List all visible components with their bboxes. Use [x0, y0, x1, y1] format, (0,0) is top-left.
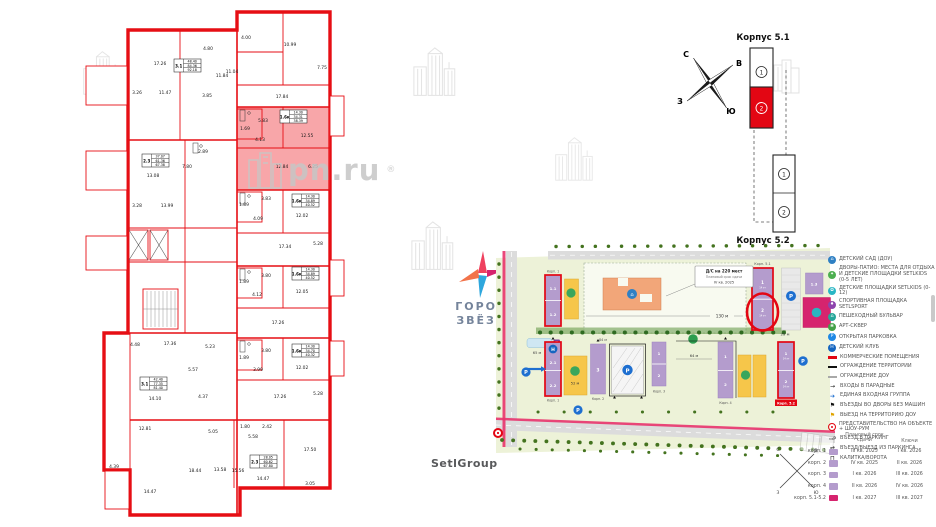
apartment-masterplan-page: 17.26 4.80 11.84 11.47 3.26 3.85 4.00 10… — [0, 0, 936, 527]
room-area: 4.12 — [252, 292, 262, 298]
floor-plan[interactable]: 17.26 4.80 11.84 11.47 3.26 3.85 4.00 10… — [84, 8, 396, 524]
section-label: 1.2 — [550, 312, 557, 317]
showroom-marker-icon[interactable] — [494, 429, 502, 437]
main-entrance-arrow-icon: ➔ — [828, 393, 837, 400]
unit-area: 40.52 — [305, 203, 314, 207]
callout-line1: Д/С на 220 мест — [706, 269, 743, 274]
korpus-label: Корп. 2 — [592, 397, 604, 401]
dimension-25: 25 м — [781, 332, 790, 337]
kids-club-icon: Н — [828, 344, 836, 352]
floors-label: 14 эт — [783, 386, 790, 389]
setlkids-playground-icon: ✿ — [828, 287, 836, 295]
korpus-51-title: Корпус 5.1 — [736, 33, 789, 43]
unit-table[interactable]: 3.1 48.40 84.36 92.18 — [174, 59, 201, 72]
unit-type: 1.6к — [280, 114, 290, 119]
room-area: 3.28 — [132, 203, 142, 209]
unit-area: 40.52 — [305, 276, 314, 280]
kindergarten-fence-icon — [828, 376, 837, 377]
compass-south: Ю — [726, 107, 735, 116]
room-area: 4.80 — [203, 46, 213, 52]
unit-table[interactable]: 1.6к 14.30 34.70 40.32 — [292, 344, 319, 357]
mini-compass-north: С — [776, 447, 779, 453]
room-area: 3.26 — [132, 90, 142, 96]
room-area: 14.47 — [257, 476, 270, 482]
floors-label: 14 эт — [759, 315, 766, 318]
legend-label: КОММЕРЧЕСКИЕ ПОМЕЩЕНИЯ — [840, 355, 919, 361]
korpus-label: Корп. 5.1 — [754, 262, 770, 266]
section-label: 2.2 — [550, 383, 557, 388]
dimension-65: 65 м — [533, 351, 542, 355]
unit-type: 3.1 — [175, 63, 182, 68]
room-area: 3.05 — [305, 481, 315, 487]
developer-name: SetlGroup — [431, 457, 498, 470]
keys-value: IV кв. 2026 — [887, 484, 932, 489]
city-sketch-icon — [774, 60, 799, 93]
section-label: 2 — [785, 379, 788, 384]
section-label: 1 — [724, 354, 727, 359]
term-value: IV кв. 2025 — [842, 461, 887, 466]
unit-area: 67.38 — [155, 163, 164, 167]
entrance-arrow-icon: → — [828, 383, 837, 390]
unit-table-selected[interactable]: 1.6к 14.30 34.31 38.39 — [280, 110, 307, 123]
room-area: 5.28 — [313, 391, 323, 397]
room-area: 12.05 — [296, 289, 309, 295]
keys-value: II кв. 2026 — [887, 461, 932, 466]
room-area: 17.26 — [274, 394, 287, 400]
room-area: 3.99 — [253, 367, 263, 373]
term-value: I кв. 2027 — [842, 496, 887, 501]
unit-type: 1.6к — [292, 198, 302, 203]
floors-label: 14 эт — [759, 287, 766, 290]
room-area: 10.99 — [284, 42, 297, 48]
pedestrian-boulevard — [536, 328, 786, 335]
section-label: 1.1 — [550, 286, 557, 291]
legend-label: ОГРАЖДЕНИЕ ТЕРРИТОРИИ — [840, 364, 912, 370]
room-area: 18.44 — [189, 468, 202, 474]
keys-value: III кв. 2027 — [887, 496, 932, 501]
compass-west: З — [677, 97, 683, 106]
patio-yards-icon: ✦ — [828, 271, 836, 279]
legend-label: ДЕТСКИЙ КЛУБ — [839, 345, 879, 351]
korpus-label: Корп. 4 — [719, 401, 731, 405]
room-area: 13.08 — [147, 173, 160, 179]
unit-type: 2.3 — [251, 459, 258, 464]
scrollbar-thumb[interactable] — [931, 295, 935, 322]
korpus-label: Корп. 5.2 — [777, 401, 795, 405]
room-area: 11.04 — [226, 69, 239, 75]
unit-table[interactable]: 1.6к 14.30 34.89 40.52 — [292, 267, 319, 280]
section-2-number: 2 — [760, 106, 764, 112]
room-area: 12.02 — [296, 213, 309, 219]
room-area: 1.89 — [239, 279, 249, 285]
legend-label: ВЫЕЗД НА ТЕРРИТОРИЮ ДОУ — [840, 413, 916, 419]
playground-icon — [570, 366, 580, 376]
kids-club-glyph: Н — [551, 347, 555, 353]
open-parking-strip: P — [782, 268, 801, 330]
unit-area: 40.32 — [305, 353, 314, 357]
mini-compass-west: З — [777, 490, 780, 496]
mini-compass-south: Ю — [814, 490, 819, 496]
unit-type: 1.6к — [292, 348, 302, 353]
korpus-swatch-selected — [829, 495, 838, 502]
callout-line2: Плановый срок сдачи — [706, 275, 742, 279]
parking-glyph: P — [789, 294, 793, 300]
floors-label: 14 эт — [783, 358, 790, 361]
room-area: 17.26 — [272, 320, 285, 326]
callout-line3: IV кв. 2025 — [714, 281, 734, 285]
unit-type: 3.1 — [141, 381, 148, 386]
yellow-building[interactable] — [565, 279, 579, 319]
room-area: 3.83 — [261, 196, 271, 202]
playground-icon — [741, 370, 750, 379]
room-area: 4.13 — [255, 137, 265, 143]
room-area: 4.00 — [241, 35, 251, 41]
dimension-52: 52 м — [571, 382, 580, 386]
kindergarten-icon: ⌂ — [828, 256, 836, 264]
staircase — [143, 289, 178, 329]
section-label: 3 — [596, 368, 599, 374]
korpus-swatch — [829, 472, 838, 479]
room-area: 17.26 — [154, 61, 167, 67]
section-1-number: 1 — [760, 70, 764, 76]
room-area: 17.36 — [164, 341, 177, 347]
legend-label: ПЕШЕХОДНЫЙ БУЛЬВАР — [839, 314, 903, 320]
section-label: 2 — [658, 373, 661, 378]
legend-label: СПОРТИВНАЯ ПЛОЩАДКА SETLSPORT — [839, 299, 935, 311]
korpus-51-schematic[interactable]: 1 2 — [750, 48, 773, 128]
room-area: 7.75 — [317, 65, 327, 71]
room-area: 3.80 — [261, 273, 271, 279]
art-square-icon: ❀ — [828, 323, 836, 331]
room-area: 1.89 — [239, 355, 249, 361]
dimension-64: 64 м — [690, 354, 699, 358]
compass-rose-icon: С В З Ю — [677, 50, 742, 116]
room-area: 2.89 — [198, 149, 208, 155]
dimension-130: 130 м — [716, 313, 728, 318]
room-area: 3.80 — [261, 348, 271, 354]
site-master-plan[interactable]: ⌂ 130 м 1.1 1.2 Корп. 1 1 14 эт 2 14 эт — [490, 242, 835, 457]
territory-fence-icon — [828, 366, 837, 367]
compass-north: С — [683, 50, 689, 59]
building-outline — [104, 12, 330, 515]
section-label: 1 — [761, 280, 764, 285]
pn-logo-icon — [248, 150, 282, 190]
unit-area: 67.80 — [263, 464, 272, 468]
legend-label: ЕДИНАЯ ВХОДНАЯ ГРУППА — [840, 393, 910, 399]
room-area: 5.23 — [205, 344, 215, 350]
car-free-yard-flag-icon: ⚑ — [828, 402, 837, 409]
section-label: 1 — [785, 351, 788, 356]
room-area: 17.34 — [279, 244, 292, 250]
unit-table[interactable]: 3.1 42.40 77.35 81.40 — [140, 377, 167, 390]
room-area: 5.58 — [248, 434, 258, 440]
room-area: 4.37 — [198, 394, 208, 400]
term-value: II кв. 2026 — [842, 484, 887, 489]
building-schematic: С В З Ю Корпус 5.1 1 2 — [670, 10, 810, 250]
unit-table[interactable]: 2.3 37.07 61.36 67.38 — [142, 154, 169, 167]
pn-watermark: pn.ru ® — [248, 150, 395, 190]
parking-garage[interactable]: P — [610, 344, 646, 396]
setlsport-icon: ♦ — [828, 301, 836, 309]
room-area: 5.05 — [208, 429, 218, 435]
room-area: 1.89 — [239, 202, 249, 208]
section-2-number: 2 — [782, 210, 786, 216]
unit-table[interactable]: 1.6к 14.30 34.89 40.52 — [292, 194, 319, 207]
mini-compass-east: В — [814, 448, 817, 454]
table-header-term: Плановый срок сдачи — [842, 433, 887, 444]
korpus-52-building[interactable]: 1 14 эт 2 14 эт Корп. 5.2 — [775, 342, 797, 406]
section-label: 1.3 — [811, 282, 818, 287]
art-square-icon — [688, 334, 698, 344]
legend-label: ДВОРЫ-ПАТИО: МЕСТА ДЛЯ ОТДЫХА И ДЕТСКИЕ … — [839, 266, 935, 283]
compass-east: В — [736, 59, 742, 68]
watermark-text: pn.ru — [288, 153, 380, 187]
unit-area: 38.39 — [293, 119, 302, 123]
legend-label: ДЕТСКИЙ САД (ДОУ) — [839, 257, 892, 263]
room-area: 11.47 — [159, 90, 172, 96]
korpus-label: Корп. 1 — [547, 399, 559, 403]
room-area: 12.81 — [139, 426, 152, 432]
room-area: 2.42 — [262, 424, 272, 430]
unit-table[interactable]: 2.3 28.05 60.62 67.80 — [250, 455, 277, 468]
legend-label: ОГРАЖДЕНИЕ ДОУ — [840, 374, 889, 380]
korpus-2-building[interactable]: 3 Корп. 2 — [591, 344, 606, 401]
korpus-1-bottom-building[interactable]: Н 2.1 2.2 Корп. 1 — [545, 342, 561, 403]
playground-icon — [566, 288, 575, 297]
section-label: 2 — [761, 308, 764, 313]
watermark-reg: ® — [386, 165, 395, 175]
commercial-premises-icon — [828, 356, 837, 359]
kindergarten-glyph: ⌂ — [630, 292, 633, 298]
keys-value: III кв. 2026 — [887, 472, 932, 477]
dimension-84: 84 м — [599, 338, 607, 342]
term-value: III кв. 2025 — [842, 449, 887, 454]
table-header-keys: Ключи — [887, 439, 932, 444]
korpus-swatch — [829, 483, 838, 490]
korpus-label: Корп. 3 — [653, 390, 665, 394]
room-area: 7.80 — [182, 164, 192, 170]
kindergarten-exit-flag-icon: ⚑ — [828, 412, 837, 419]
korpus-4-building[interactable]: 1 2 Корп. 4 — [718, 342, 733, 405]
term-value: I кв. 2026 — [842, 472, 887, 477]
setl-group-logo: SetlGroup — [431, 457, 498, 470]
room-area: 5.57 — [188, 367, 198, 373]
korpus-label: Корп. 1 — [547, 270, 559, 274]
section-label: 1 — [658, 351, 661, 356]
korpus-swatch — [829, 449, 838, 456]
legend-label: ВХОДЫ В ПАРАДНЫЕ — [840, 384, 895, 390]
room-area: 4.09 — [253, 216, 263, 222]
room-area: 13.99 — [161, 203, 174, 209]
room-area: 17.50 — [304, 447, 317, 453]
room-area: 13.58 — [214, 467, 227, 473]
unit-type: 2.3 — [143, 158, 150, 163]
section-1-number: 1 — [782, 172, 786, 178]
parking-glyph: P — [576, 408, 580, 414]
korpus-name: корп. 5.1-5.2 — [793, 496, 829, 501]
legend-label: ВЪЕЗДЫ ВО ДВОРЫ БЕЗ МАШИН — [840, 403, 925, 409]
room-area: 5.83 — [258, 118, 268, 124]
keys-value: I кв. 2026 — [887, 449, 932, 454]
parking-glyph: P — [524, 370, 528, 376]
yellow-building[interactable] — [753, 355, 766, 397]
unit-type: 1.6к — [292, 271, 302, 276]
city-sketch-icon — [414, 48, 455, 96]
section-label: 2.1 — [550, 360, 557, 365]
room-area: 17.84 — [276, 94, 289, 100]
boulevard-icon: ⌂ — [828, 313, 836, 321]
room-area: 12.55 — [301, 133, 314, 139]
legend-label: ДЕТСКИЕ ПЛОЩАДКИ SETLKIDS (0-12) — [839, 286, 935, 298]
korpus-swatch — [829, 460, 838, 467]
room-area: 5.28 — [313, 241, 323, 247]
legend-label: АРТ-СКВЕР — [839, 324, 867, 330]
room-area: 14.10 — [149, 396, 162, 402]
legend-label: ОТКРЫТАЯ ПАРКОВКА — [839, 335, 897, 341]
unit-area: 81.40 — [153, 386, 162, 390]
korpus-3-building[interactable]: 1 2 Корп. 3 — [652, 342, 666, 394]
parking-glyph: P — [625, 368, 629, 374]
room-area: 15.56 — [232, 468, 245, 474]
room-area: 14.47 — [144, 489, 157, 495]
korpus-52-schematic[interactable]: 1 2 — [773, 155, 795, 232]
playground-setlkids-icon — [812, 308, 822, 318]
room-area: 1.69 — [240, 126, 250, 132]
section-label: 2 — [724, 382, 727, 387]
room-area: 3.85 — [202, 93, 212, 99]
unit-area: 92.18 — [187, 68, 196, 72]
open-parking-icon: P — [828, 333, 836, 341]
city-sketch-icon — [556, 138, 593, 181]
room-area: 4.48 — [130, 342, 140, 348]
korpus-1-top-building[interactable]: 1.1 1.2 Корп. 1 — [545, 270, 561, 327]
parking-glyph: P — [801, 359, 805, 365]
room-area: 12.02 — [296, 365, 309, 371]
room-area: 4.39 — [109, 464, 119, 470]
room-area: 1.80 — [240, 424, 250, 430]
mini-compass-icon: С В З Ю — [770, 442, 822, 496]
